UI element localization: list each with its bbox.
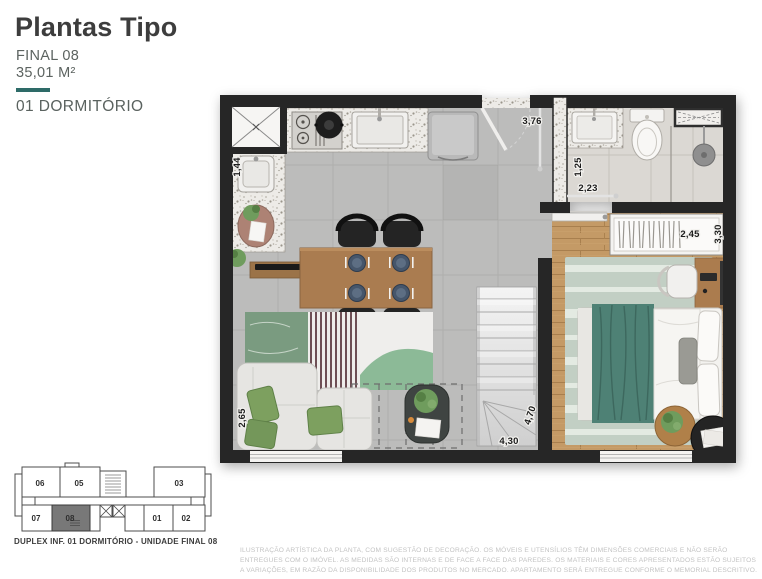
pillow xyxy=(697,311,721,362)
dim-hall-depth: 3,76 xyxy=(522,116,541,127)
bathroom-niche xyxy=(675,109,722,126)
dim-bedroom-width: 2,45 xyxy=(680,229,700,240)
typology-label: 01 DORMITÓRIO xyxy=(16,98,144,116)
dim-bathroom-length: 2,23 xyxy=(578,183,597,194)
coffee-table xyxy=(405,385,449,443)
key-plan-caption: DUPLEX INF. 01 DORMITÓRIO - UNIDADE FINA… xyxy=(14,537,294,546)
desk xyxy=(695,258,725,308)
unit-final-label: FINAL 08 xyxy=(16,48,79,64)
unit-03: 03 xyxy=(175,479,184,488)
unit-05: 05 xyxy=(75,479,84,488)
decor-tray xyxy=(238,205,274,247)
stair-core-hatch xyxy=(105,475,121,493)
closet xyxy=(610,214,723,255)
toilet xyxy=(630,109,664,160)
monitor xyxy=(720,261,724,305)
dim-bedroom-depth: 3,30 xyxy=(713,224,724,243)
floor-plan: 1,44 3,76 1,25 2,23 2,45 3,30 2,65 4,70 … xyxy=(220,95,736,463)
accent-pillow xyxy=(679,338,697,384)
fridge xyxy=(428,112,478,160)
unit-08: 08 xyxy=(66,514,75,523)
teal-divider xyxy=(16,88,50,92)
dim-living-length: 4,30 xyxy=(499,436,518,447)
unit-02: 02 xyxy=(182,514,191,523)
unit-01: 01 xyxy=(153,514,162,523)
kitchen-sink xyxy=(352,108,408,148)
unit-07: 07 xyxy=(32,514,41,523)
dim-bathroom-width: 1,25 xyxy=(573,157,584,177)
duct-shaft xyxy=(225,100,287,154)
bathroom-vanity xyxy=(567,108,623,148)
disclaimer-text: ILUSTRAÇÃO ARTÍSTICA DA PLANTA, COM SUGE… xyxy=(240,546,758,577)
prep-sink xyxy=(238,156,274,192)
key-plan: 06 05 03 07 08 01 02 xyxy=(13,461,213,535)
pillow xyxy=(697,364,720,417)
bathroom-partition-wall xyxy=(553,97,567,203)
dim-living-width: 2,65 xyxy=(237,408,248,428)
elevators xyxy=(100,505,125,517)
page-title: Plantas Tipo xyxy=(15,12,177,43)
unit-area-label: 35,01 M² xyxy=(16,65,76,81)
bed xyxy=(578,304,722,423)
unit-06: 06 xyxy=(36,479,45,488)
dim-kitchen-side: 1,44 xyxy=(232,157,243,177)
